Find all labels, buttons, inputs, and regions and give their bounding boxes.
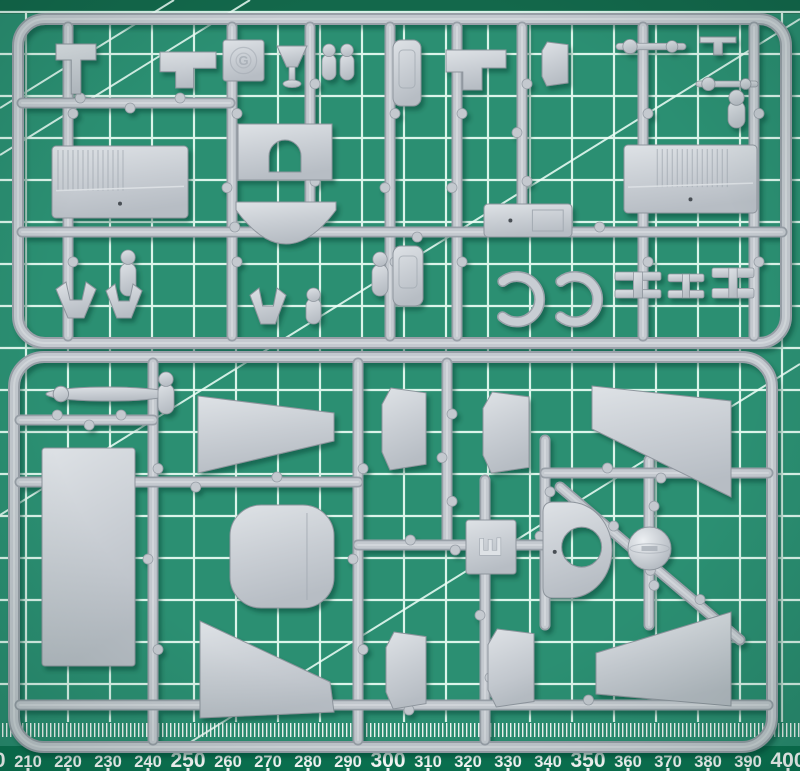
part-flap-panel-d [488, 629, 534, 707]
part-mid-pin [372, 252, 388, 296]
part-gate-pin [728, 90, 745, 128]
part-flap-panel-a [382, 388, 426, 470]
part-wheel-pin-b [340, 44, 354, 80]
scene-canvas: 2002102202302402502602702802903003103203… [0, 0, 800, 771]
sprue-letter: E [475, 537, 508, 557]
part-instrument-panel [393, 246, 423, 306]
part-rudder-blade [542, 42, 568, 86]
sprue-letter-tab-e: E [466, 520, 516, 574]
part-flap-panel-c [386, 632, 426, 709]
sprue-letter-tab-g: G [223, 40, 264, 81]
part-corrugated-panel-right [624, 145, 757, 213]
part-hub-pin [158, 372, 174, 414]
part-wing-center-panel [230, 505, 334, 608]
part-ammo-box [484, 204, 572, 237]
ruler-label: 200 [0, 749, 6, 771]
ruler-label: 400 [770, 749, 800, 771]
part-lower-pin [306, 288, 321, 324]
sprue-letter: G [238, 53, 248, 68]
sprue-photo: 2002102202302402502602702802903003103203… [0, 0, 800, 771]
part-fuselage-side-panel [42, 448, 135, 666]
part-wheel-pin-a [322, 44, 336, 80]
part-corrugated-panel-left [52, 146, 188, 218]
part-flap-panel-b [483, 392, 529, 473]
